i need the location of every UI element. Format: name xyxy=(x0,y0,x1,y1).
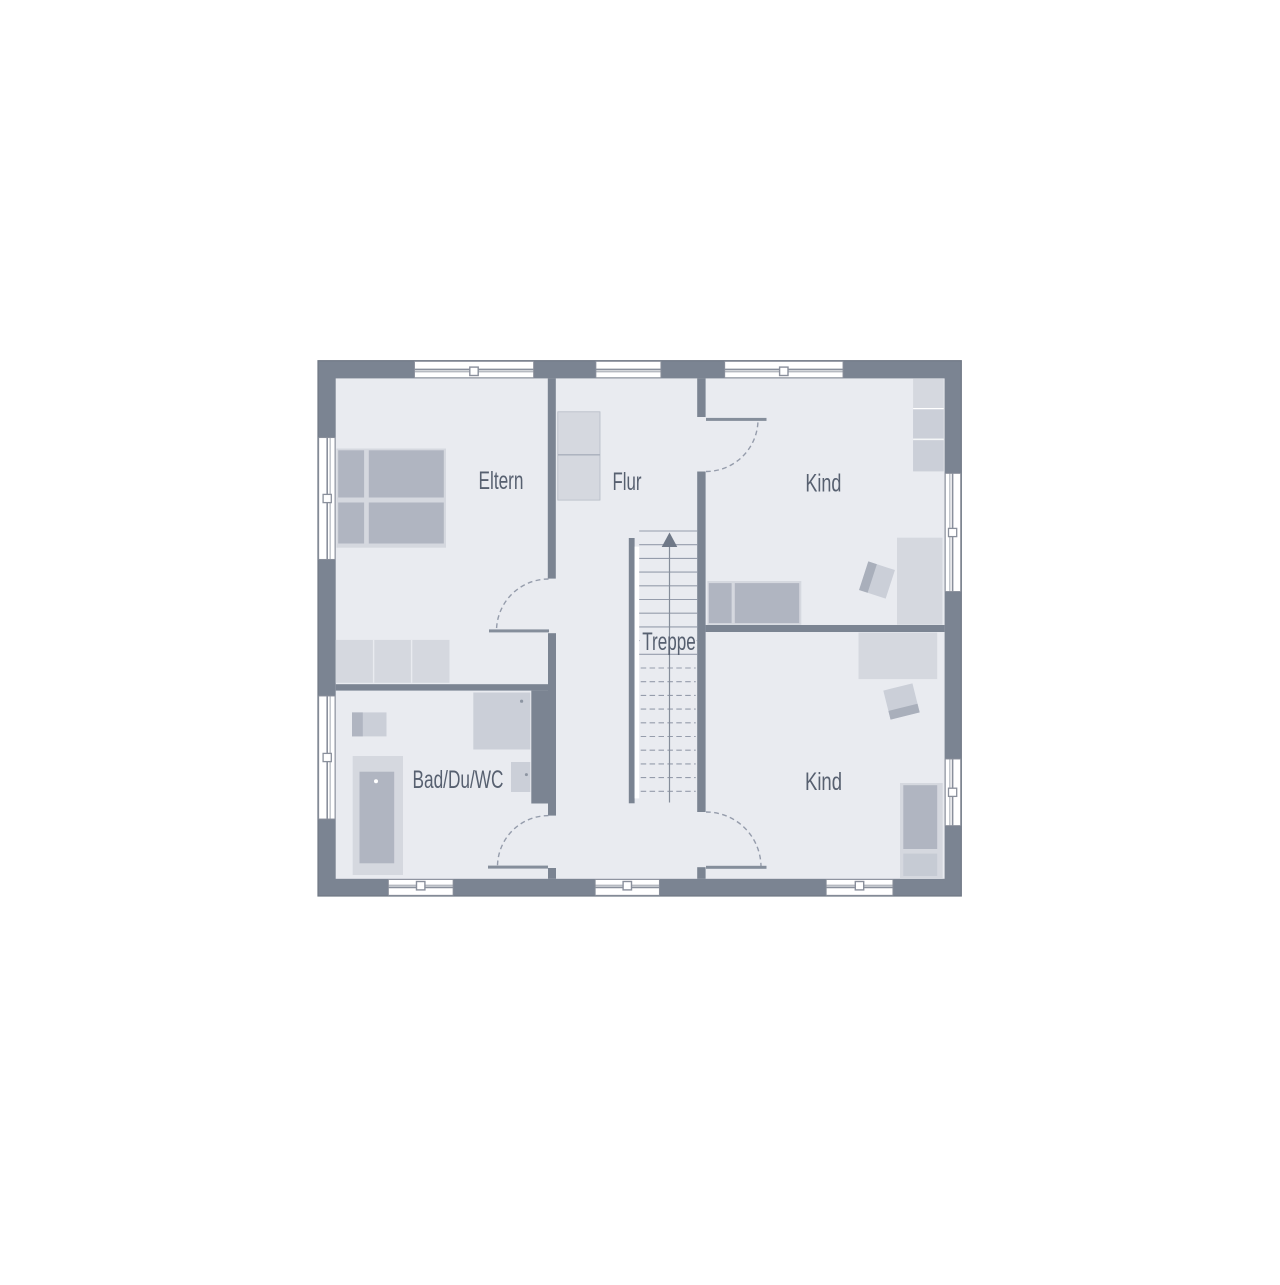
svg-text:Kind: Kind xyxy=(805,768,842,796)
svg-text:Treppe: Treppe xyxy=(642,628,696,656)
svg-text:Bad/Du/WC: Bad/Du/WC xyxy=(413,766,504,794)
svg-text:Kind: Kind xyxy=(805,469,841,497)
svg-text:Eltern: Eltern xyxy=(479,467,524,495)
svg-text:Flur: Flur xyxy=(613,468,642,496)
